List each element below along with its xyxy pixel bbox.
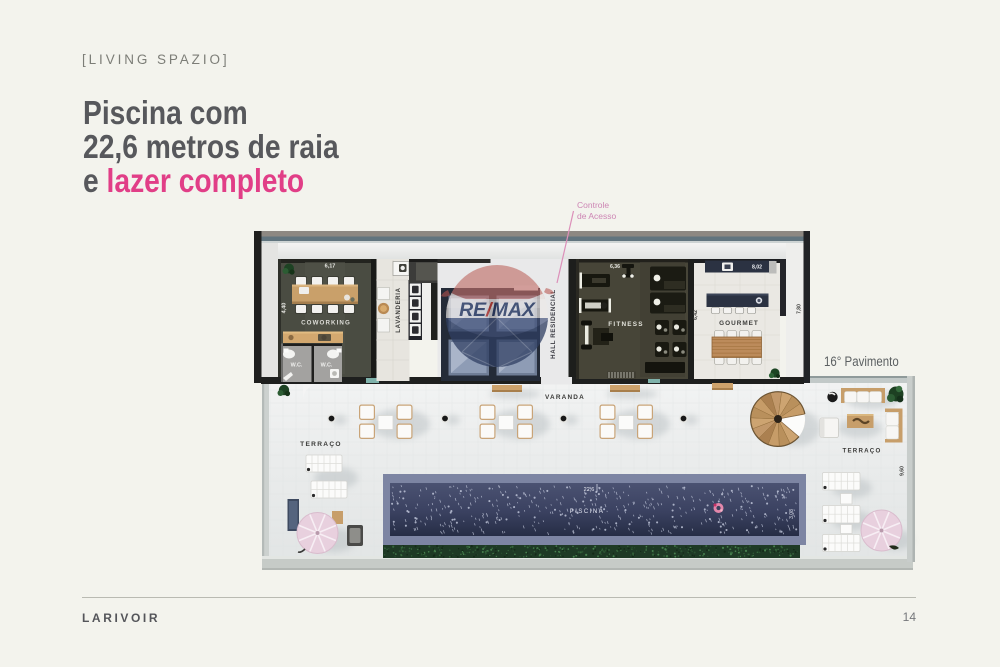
svg-text:8,02: 8,02: [752, 265, 762, 271]
svg-text:22,6: 22,6: [584, 487, 595, 493]
svg-text:GOURMET: GOURMET: [719, 320, 759, 327]
svg-text:6,36: 6,36: [610, 264, 620, 270]
svg-text:RE/MAX: RE/MAX: [459, 299, 536, 321]
svg-text:6,42: 6,42: [693, 310, 699, 320]
svg-text:LAVANDERIA: LAVANDERIA: [396, 287, 402, 332]
svg-text:6,17: 6,17: [325, 264, 336, 270]
svg-text:TERRAÇO: TERRAÇO: [843, 448, 882, 455]
svg-text:PISCINA: PISCINA: [570, 509, 605, 515]
svg-text:W.C.: W.C.: [291, 363, 303, 369]
svg-text:4,40: 4,40: [282, 303, 288, 314]
svg-text:TERRAÇO: TERRAÇO: [300, 441, 342, 448]
svg-text:HALL RESIDENCIAL: HALL RESIDENCIAL: [550, 289, 557, 359]
svg-text:W.C.: W.C.: [321, 363, 333, 369]
svg-text:3,08: 3,08: [789, 509, 795, 519]
svg-text:FITNESS: FITNESS: [608, 321, 643, 328]
svg-text:VARANDA: VARANDA: [545, 394, 585, 401]
svg-text:7,80: 7,80: [797, 304, 803, 314]
svg-text:COWORKING: COWORKING: [301, 320, 351, 327]
svg-text:9,60: 9,60: [900, 466, 906, 476]
